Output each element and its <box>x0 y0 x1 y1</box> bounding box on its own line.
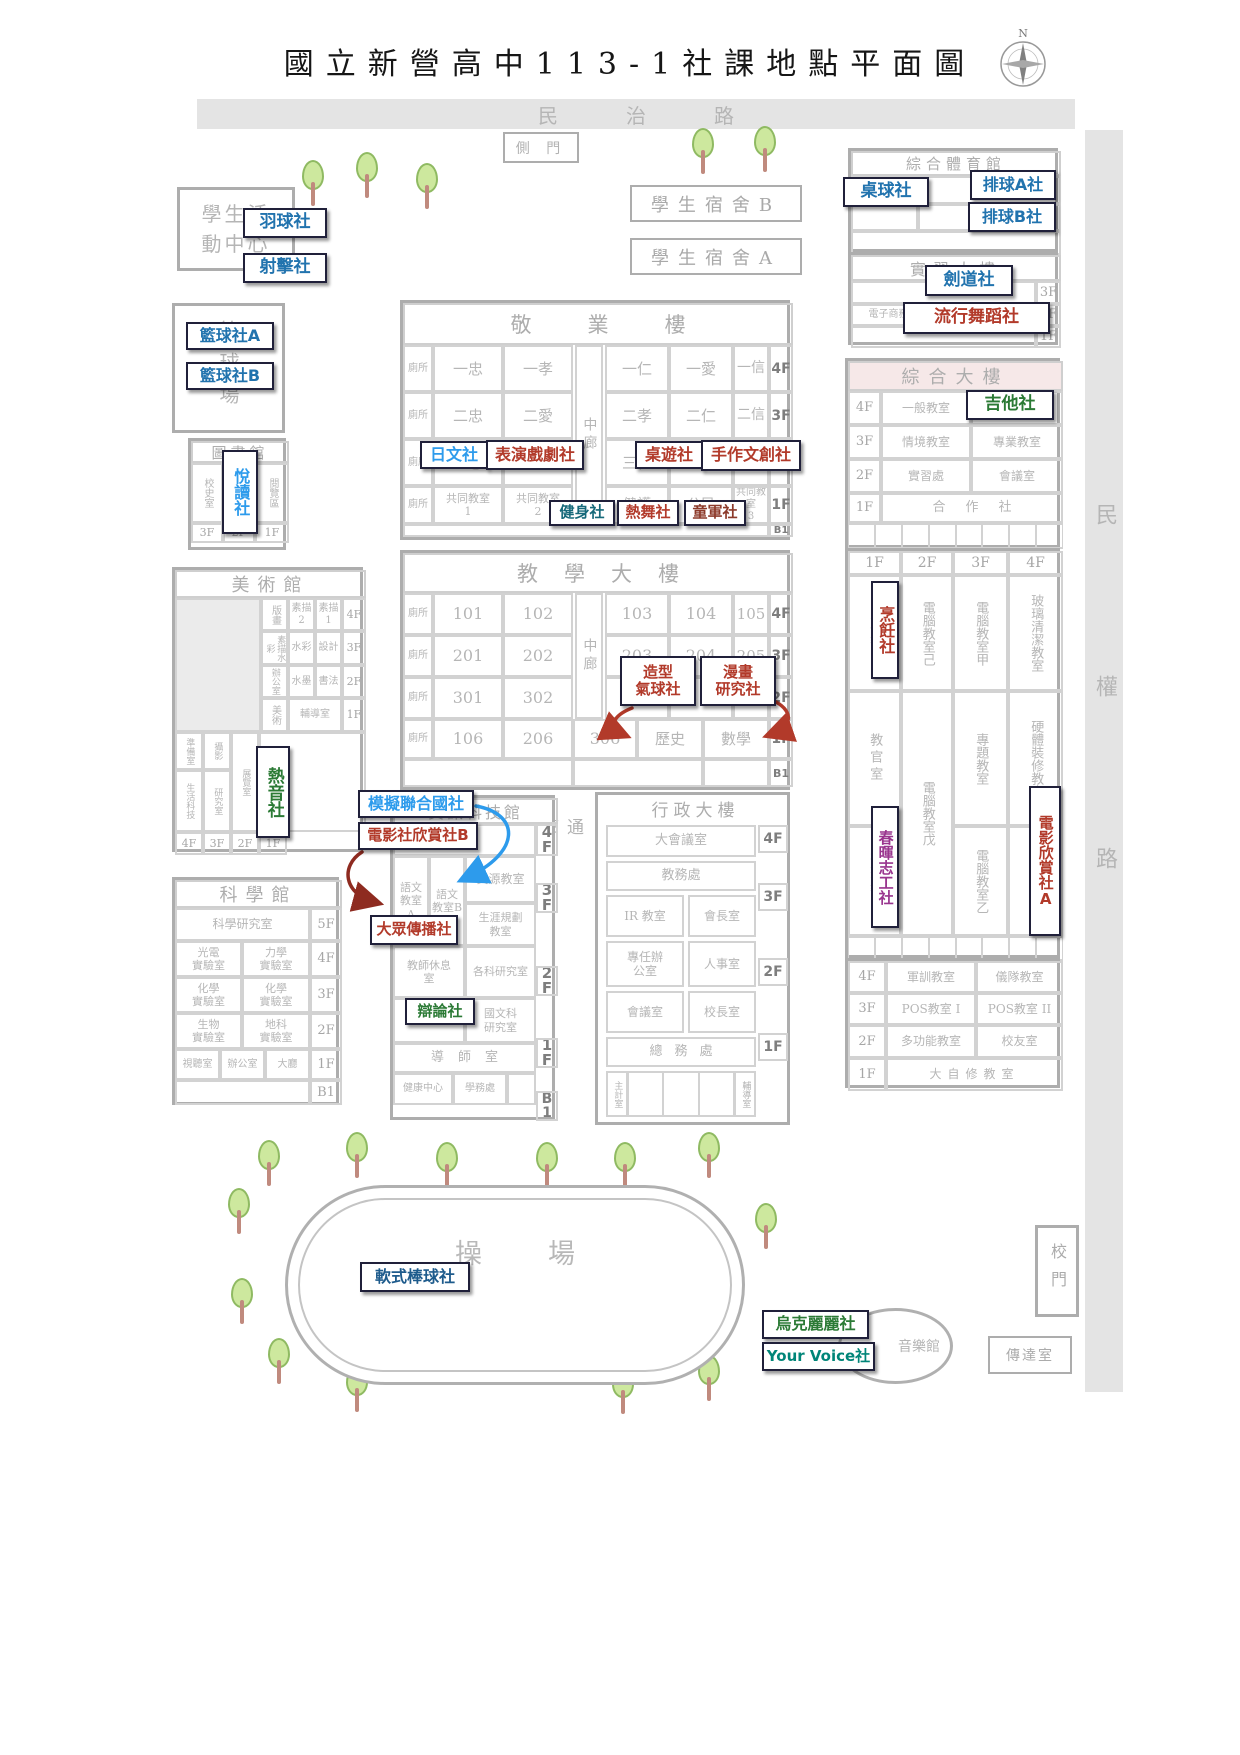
room-chemistry-lab: 化學 實驗室 <box>242 977 310 1013</box>
club-label-board-game: 桌遊社 <box>635 441 703 469</box>
room-sketch-watercolor: 素描水彩 <box>261 631 288 665</box>
page-title: 國立新營高中113-1社課地點平面圖 <box>200 36 1060 86</box>
room-computer-wu: 電腦教室戊 <box>901 691 953 936</box>
building-science: 科學館 科學研究室 5F 光電 實驗室 力學 實驗室 4F 化學 實驗室 化學 … <box>172 877 339 1105</box>
tree-icon <box>268 1338 290 1386</box>
club-label-guitar: 吉他社 <box>966 390 1054 420</box>
infotech-b1-cell <box>507 1073 536 1105</box>
toilet: 廁所 <box>403 392 433 439</box>
class-1-ai: 一愛 <box>669 345 733 392</box>
floor-label: 3F <box>1036 281 1061 304</box>
playground-label: 操場 <box>288 1232 742 1271</box>
room-life-tech: 生活科技 <box>175 770 203 832</box>
room-health-center: 健康中心 <box>393 1073 453 1105</box>
tree-icon <box>302 160 324 208</box>
room-av: 視聽室 <box>175 1049 220 1080</box>
tree-icon <box>416 163 438 211</box>
road-minquan: 民權路 <box>1085 130 1123 1392</box>
floor-label: 1F <box>769 719 793 759</box>
room-302: 302 <box>503 677 573 719</box>
class-2-ai: 二愛 <box>503 392 573 439</box>
class-1-xin: 一信 <box>733 345 769 392</box>
floor-label: 2F <box>310 1013 342 1049</box>
room-honor-guard: 儀隊教室 <box>976 961 1063 993</box>
floor-label: 3F <box>758 883 788 911</box>
room-chinese-research: 國文科 研究室 <box>465 998 536 1043</box>
tree-icon <box>436 1142 458 1190</box>
building-complex-lower: 4F 軍訓教室 儀隊教室 3F POS教室 I POS教室 II 2F 多功能教… <box>845 958 1060 1088</box>
floor-label: 3F <box>769 392 793 439</box>
club-label-debate: 辯論社 <box>405 998 475 1025</box>
art-gray-block <box>175 598 261 732</box>
floor-label: 4F <box>848 961 886 993</box>
room-common-1: 共同教室 1 <box>433 486 503 524</box>
room-201: 201 <box>433 635 503 677</box>
floor-label: 4F <box>769 593 793 635</box>
room-meeting: 會議室 <box>971 459 1063 493</box>
toilet: 廁所 <box>403 719 433 759</box>
club-label-basketball-b: 籃球社B <box>186 362 274 390</box>
room-resource: 資源教室 <box>465 856 536 903</box>
class-1-xiao: 一孝 <box>503 345 573 392</box>
room-self-study: 大自修教室 <box>886 1058 1063 1091</box>
room-design: 設計 <box>315 631 342 665</box>
room-reading-area: 閱覽區 <box>255 463 289 523</box>
club-label-mass-comm: 大眾傳播社 <box>370 915 458 945</box>
room-dept-research: 各科研究室 <box>465 946 536 998</box>
room-counseling: 輔導室 <box>734 1071 756 1117</box>
room-101: 101 <box>433 593 503 635</box>
floor-label: 5F <box>310 908 342 941</box>
building-complex-upper: 綜合大樓 4F 一般教室 3F 情境教室 專業教室 2F 實習處 會議室 1F … <box>845 358 1060 548</box>
room-prep: 準備室 <box>175 732 203 770</box>
room-professional: 專業教室 <box>971 425 1063 459</box>
svg-text:N: N <box>1018 27 1028 40</box>
floor-label: 3F <box>848 425 881 459</box>
room-chair: 會長室 <box>688 895 756 937</box>
complex-title: 綜合大樓 <box>848 361 1063 391</box>
dorm-b: 學生宿舍B <box>630 185 802 222</box>
teaching-bottom <box>403 759 573 787</box>
room-student-affairs: 學務處 <box>453 1073 507 1105</box>
room-school-history: 校史室 <box>191 463 223 523</box>
room-general-classroom: 一般教室 <box>881 391 971 425</box>
room-301: 301 <box>433 677 503 719</box>
room-photography: 攝影 <box>203 732 231 770</box>
class-2-ren: 二仁 <box>669 392 733 439</box>
toilet: 廁所 <box>403 345 433 392</box>
floor-label: 3F <box>310 977 342 1013</box>
room-dedicated-office: 專任辦 公室 <box>606 941 684 987</box>
playground-track: 操場 <box>285 1185 745 1385</box>
main-gate: 校門 <box>1035 1225 1079 1317</box>
floor-label: 3F <box>848 993 886 1025</box>
floor-label: 2F <box>342 665 366 698</box>
floor-label: 2F <box>536 966 558 996</box>
club-label-film-b: 電影社欣賞社B <box>358 822 478 850</box>
floor-label: 3F <box>342 631 366 665</box>
tree-icon <box>614 1142 636 1190</box>
room-conference: 會議室 <box>606 991 684 1033</box>
compass-rose-icon: N <box>996 26 1050 90</box>
floor-label: 1F <box>848 493 881 523</box>
room-math: 數學 <box>703 719 769 759</box>
floor-label: B1 <box>769 759 793 787</box>
room-art: 美術 <box>261 698 288 732</box>
room-homeroom: 導師室 <box>393 1043 536 1073</box>
jingye-title: 敬業樓 <box>403 303 793 345</box>
tree-icon <box>698 1132 720 1180</box>
floor-label: 1F <box>342 698 366 732</box>
floor-label: 1F <box>536 1038 558 1068</box>
room-counseling: 輔導室 <box>288 698 342 732</box>
club-label-basketball-a: 籃球社A <box>186 322 274 350</box>
floor-label: 3F <box>953 551 1008 575</box>
club-label-handcraft: 手作文創社 <box>701 440 801 471</box>
room-project: 專題教室 <box>953 691 1008 826</box>
divider-row <box>628 1071 734 1117</box>
reception-room: 傳達室 <box>988 1336 1072 1374</box>
toilet: 廁所 <box>403 486 433 524</box>
room-science-research: 科學研究室 <box>175 908 310 941</box>
room-career: 生涯規劃 教室 <box>465 903 536 946</box>
club-label-badminton: 羽球社 <box>243 208 327 238</box>
tree-icon <box>536 1142 558 1190</box>
club-label-film-a: 電影欣賞社A <box>1029 786 1061 936</box>
art-title: 美術館 <box>175 570 366 598</box>
divider-row <box>848 523 1063 549</box>
club-label-shooting: 射擊社 <box>243 253 327 283</box>
floor-label: 1F <box>255 523 289 543</box>
floor-label: B1 <box>536 1091 558 1121</box>
room-internship-office: 實習處 <box>881 459 971 493</box>
road-minzhi: 民治路 <box>197 99 1075 129</box>
room-watercolor: 水彩 <box>288 631 315 665</box>
tree-icon <box>692 128 714 176</box>
room-general-affairs: 總務處 <box>606 1037 756 1067</box>
club-label-volleyball-b: 排球B社 <box>968 202 1056 232</box>
club-label-japanese: 日文社 <box>420 441 488 469</box>
teaching-bottom <box>703 759 769 787</box>
room-printmaking: 版畫 <box>261 598 288 631</box>
class-2-xiao: 二孝 <box>605 392 669 439</box>
floor-label: 3F <box>191 523 223 543</box>
room-mechanics-lab: 力學 實驗室 <box>242 941 310 977</box>
club-label-kendo: 劍道社 <box>925 265 1013 296</box>
floor-label: 4F <box>536 824 558 856</box>
floor-label: 3F <box>203 832 231 855</box>
campus-map: 民治路 民權路 國立新營高中113-1社課地點平面圖 N 側 門 學生宿舍B 學… <box>0 0 1240 1755</box>
club-label-chunhui: 春暉志工社 <box>871 806 899 928</box>
room-office: 辦公室 <box>220 1049 265 1080</box>
toilet: 廁所 <box>403 677 433 719</box>
room-104: 104 <box>669 593 733 635</box>
room-office: 辦公室 <box>261 665 288 698</box>
side-gate: 側 門 <box>503 132 579 163</box>
floor-label: 4F <box>175 832 203 855</box>
class-1-ren: 一仁 <box>605 345 669 392</box>
science-bottom <box>175 1080 310 1105</box>
club-label-your-voice: Your Voice社 <box>762 1342 875 1371</box>
floor-label: B1 <box>769 524 793 537</box>
room-106: 106 <box>433 719 503 759</box>
club-label-rock-music: 熱音社 <box>256 746 290 838</box>
club-label-balloon: 造型 氣球社 <box>620 656 696 706</box>
science-title: 科學館 <box>175 880 342 908</box>
room-206: 206 <box>503 719 573 759</box>
room-academic-affairs: 教務處 <box>606 861 756 891</box>
dorm-a: 學生宿舍A <box>630 238 802 275</box>
tree-icon <box>346 1132 368 1180</box>
room-computer-yi: 電腦教室乙 <box>953 826 1008 936</box>
club-label-table-tennis: 桌球社 <box>843 177 929 207</box>
teaching-bottom <box>573 759 703 787</box>
room-computer-ji: 電腦教室己 <box>901 575 953 691</box>
floor-label: 1F <box>758 1033 788 1061</box>
room-105: 105 <box>733 593 769 635</box>
tree-icon <box>231 1278 253 1326</box>
room-102: 102 <box>503 593 573 635</box>
club-label-street-dance: 流行舞蹈社 <box>903 302 1050 334</box>
room-grand-meeting: 大會議室 <box>606 825 756 857</box>
tree-icon <box>754 126 776 174</box>
club-label-scouts: 童軍社 <box>684 500 746 526</box>
room-principal: 校長室 <box>688 991 756 1033</box>
floor-label: 2F <box>901 551 953 575</box>
admin-title: 行政大樓 <box>598 795 793 821</box>
room-pos-2: POS教室 II <box>976 993 1063 1025</box>
class-1-zhong: 一忠 <box>433 345 503 392</box>
club-label-reading: 悅讀社 <box>222 450 258 534</box>
club-label-drama: 表演戲劇社 <box>486 440 584 470</box>
passage-corridor: 通廊 <box>558 818 586 993</box>
floor-label: 2F <box>848 1025 886 1058</box>
floor-label: 4F <box>769 345 793 392</box>
room-coop-store: 合作社 <box>881 493 1063 523</box>
room-202: 202 <box>503 635 573 677</box>
club-label-ukulele: 烏克麗麗社 <box>762 1310 869 1339</box>
tree-icon <box>755 1203 777 1251</box>
floor-label: 2F <box>758 958 788 986</box>
floor-label: 4F <box>1008 551 1063 575</box>
tree-icon <box>356 152 378 200</box>
teaching-corridor: 中廊 <box>575 593 603 719</box>
room-earth-science-lab: 地科 實驗室 <box>242 1013 310 1049</box>
club-label-softball: 軟式棒球社 <box>360 1262 470 1292</box>
teaching-title: 教學大樓 <box>403 553 793 593</box>
room-103: 103 <box>605 593 669 635</box>
room-hr: 人事室 <box>688 941 756 987</box>
club-label-manga: 漫畫 研究社 <box>700 656 776 706</box>
room-chemistry-lab: 化學 實驗室 <box>175 977 242 1013</box>
floor-label: 3F <box>536 883 558 913</box>
floor-label: 1F <box>310 1049 342 1080</box>
room-sketch-1: 素描1 <box>315 598 342 631</box>
class-2-xin: 二信 <box>733 392 769 439</box>
room-military-training: 軍訓教室 <box>886 961 976 993</box>
room-ir: IR 教室 <box>606 895 684 937</box>
arrow-film-b-to-lang-a <box>348 852 374 902</box>
room-research: 研究室 <box>203 770 231 832</box>
club-label-fitness: 健身社 <box>549 500 615 526</box>
room-exhibition: 展覽室 <box>231 732 259 832</box>
club-label-volleyball-a: 排球A社 <box>970 170 1056 200</box>
toilet: 廁所 <box>403 635 433 677</box>
floor-label: 4F <box>342 598 366 631</box>
room-ink: 水墨 <box>288 665 315 698</box>
room-biology-lab: 生物 實驗室 <box>175 1013 242 1049</box>
tree-icon <box>228 1188 250 1236</box>
building-admin: 行政大樓 大會議室 4F 教務處 3F IR 教室 會長室 專任辦 公室 人事室… <box>595 792 790 1125</box>
floor-label: 1F <box>848 1058 886 1091</box>
tree-icon <box>258 1140 280 1188</box>
room-calligraphy: 書法 <box>315 665 342 698</box>
club-label-cooking: 烹飪社 <box>871 581 899 679</box>
floor-label: 2F <box>848 459 881 493</box>
floor-label: 1F <box>848 551 901 575</box>
room-multifunction: 多功能教室 <box>886 1025 976 1058</box>
class-2-zhong: 二忠 <box>433 392 503 439</box>
toilet: 廁所 <box>403 593 433 635</box>
room-alumni: 校友室 <box>976 1025 1063 1058</box>
room-306: 306 <box>573 719 637 759</box>
floor-label: B1 <box>310 1080 342 1105</box>
floor-label: 4F <box>848 391 881 425</box>
floor-label: 1F <box>769 486 793 524</box>
room-history: 歷史 <box>637 719 703 759</box>
room-glass-clean: 玻璃清潔教室 <box>1008 575 1063 691</box>
floor-label: 4F <box>310 941 342 977</box>
room-optoelectronics-lab: 光電 實驗室 <box>175 941 242 977</box>
jingye-corridor: 中廊 <box>575 345 603 524</box>
room-teacher-lounge: 教師休息 室 <box>393 946 465 998</box>
floor-label: 4F <box>758 825 788 853</box>
room-accounting: 主計室 <box>606 1071 628 1117</box>
room-sketch-2: 素描2 <box>288 598 315 631</box>
club-label-dance: 熱舞社 <box>617 500 679 526</box>
room-situational: 情境教室 <box>881 425 971 459</box>
room-computer-jia: 電腦教室甲 <box>953 575 1008 691</box>
room-pos-1: POS教室 I <box>886 993 976 1025</box>
floor-label: 2F <box>231 832 259 855</box>
room-lobby: 大廳 <box>265 1049 310 1080</box>
club-label-mun: 模擬聯合國社 <box>358 790 474 818</box>
